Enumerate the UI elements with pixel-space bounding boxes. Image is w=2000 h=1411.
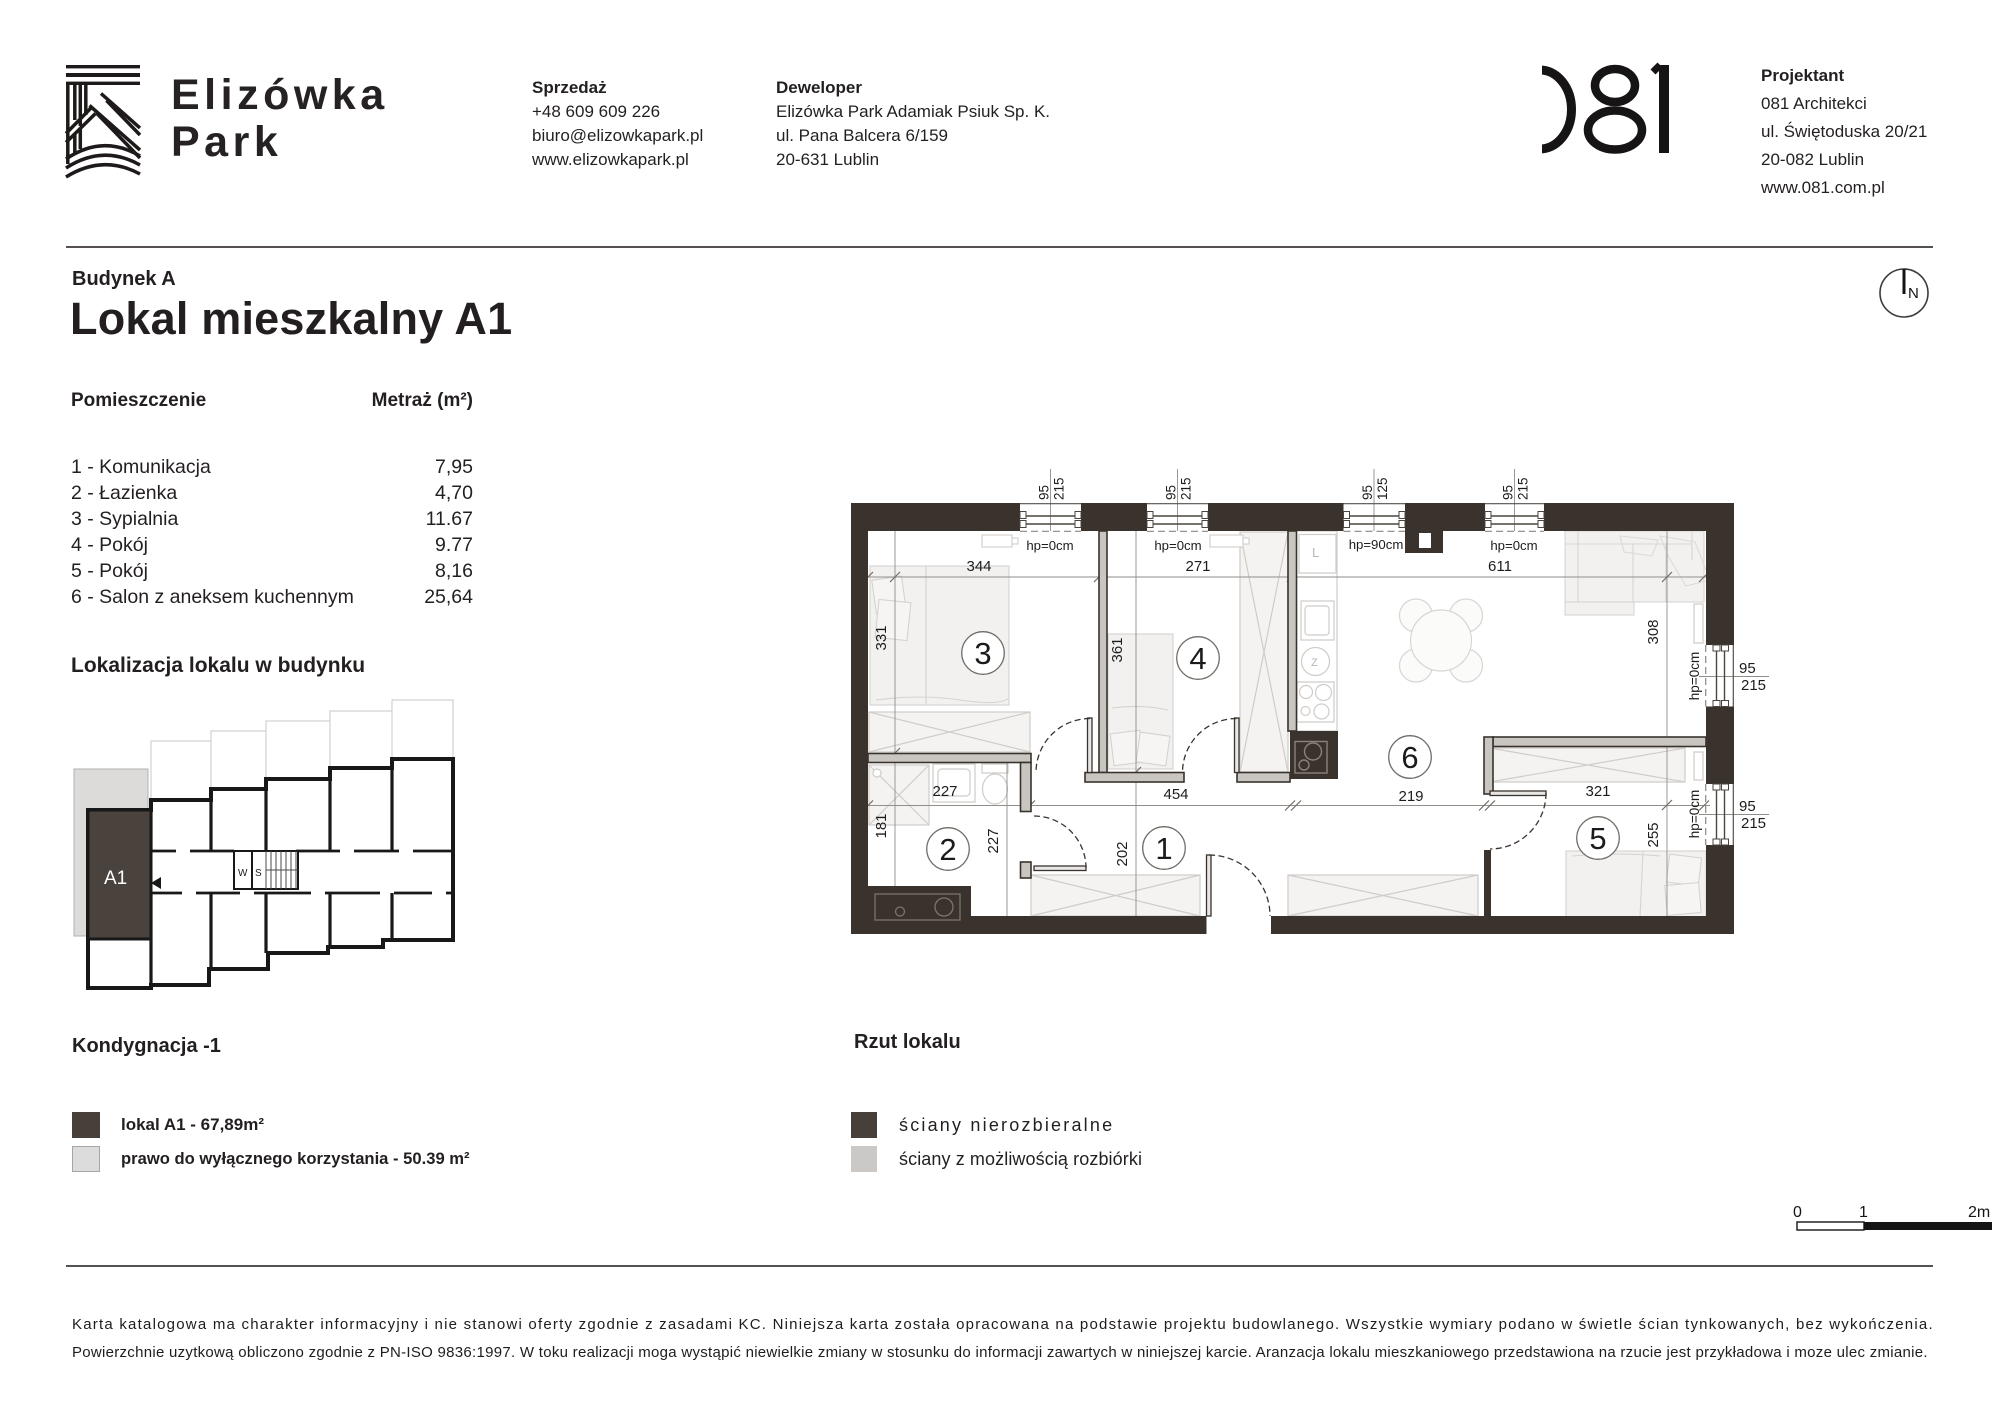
svg-text:2m: 2m: [1968, 1204, 1990, 1221]
svg-text:hp=0cm: hp=0cm: [1687, 652, 1702, 700]
svg-text:6: 6: [1401, 740, 1418, 775]
svg-text:S: S: [255, 868, 262, 879]
svg-text:271: 271: [1185, 558, 1210, 575]
svg-text:331: 331: [873, 625, 890, 650]
svg-text:Z: Z: [1311, 657, 1318, 669]
svg-text:215: 215: [1741, 677, 1766, 694]
svg-text:361: 361: [1109, 637, 1126, 662]
svg-text:hp=0cm: hp=0cm: [1154, 538, 1201, 553]
svg-text:hp=0cm: hp=0cm: [1490, 538, 1537, 553]
svg-text:2: 2: [939, 832, 956, 867]
svg-text:219: 219: [1398, 788, 1423, 805]
svg-text:L: L: [1312, 545, 1319, 560]
svg-text:95: 95: [1501, 485, 1516, 500]
svg-text:215: 215: [1516, 477, 1531, 500]
svg-text:95: 95: [1037, 485, 1052, 500]
svg-text:W: W: [238, 868, 248, 879]
svg-text:454: 454: [1163, 786, 1188, 803]
svg-text:1: 1: [1155, 831, 1172, 866]
svg-text:321: 321: [1585, 783, 1610, 800]
svg-text:hp=0cm: hp=0cm: [1026, 538, 1073, 553]
svg-text:0: 0: [1793, 1204, 1802, 1221]
svg-text:215: 215: [1052, 477, 1067, 500]
svg-text:1: 1: [1859, 1204, 1868, 1221]
svg-text:A1: A1: [104, 868, 127, 889]
svg-text:255: 255: [1645, 822, 1662, 847]
svg-text:308: 308: [1645, 619, 1662, 644]
svg-text:215: 215: [1179, 477, 1194, 500]
svg-text:227: 227: [932, 783, 957, 800]
svg-text:611: 611: [1488, 558, 1512, 575]
svg-text:227: 227: [985, 828, 1002, 853]
svg-text:95: 95: [1739, 798, 1756, 815]
svg-text:3: 3: [974, 636, 991, 671]
svg-text:125: 125: [1375, 477, 1390, 500]
svg-text:344: 344: [966, 558, 991, 575]
svg-text:95: 95: [1739, 660, 1756, 677]
svg-text:95: 95: [1164, 485, 1179, 500]
svg-text:N: N: [1908, 285, 1919, 302]
svg-text:181: 181: [873, 813, 890, 838]
svg-text:215: 215: [1741, 815, 1766, 832]
svg-text:hp=0cm: hp=0cm: [1687, 790, 1702, 838]
svg-text:202: 202: [1114, 841, 1131, 866]
svg-text:hp=90cm: hp=90cm: [1349, 537, 1404, 552]
svg-text:95: 95: [1360, 485, 1375, 500]
svg-text:4: 4: [1189, 641, 1206, 676]
svg-text:5: 5: [1589, 821, 1606, 856]
